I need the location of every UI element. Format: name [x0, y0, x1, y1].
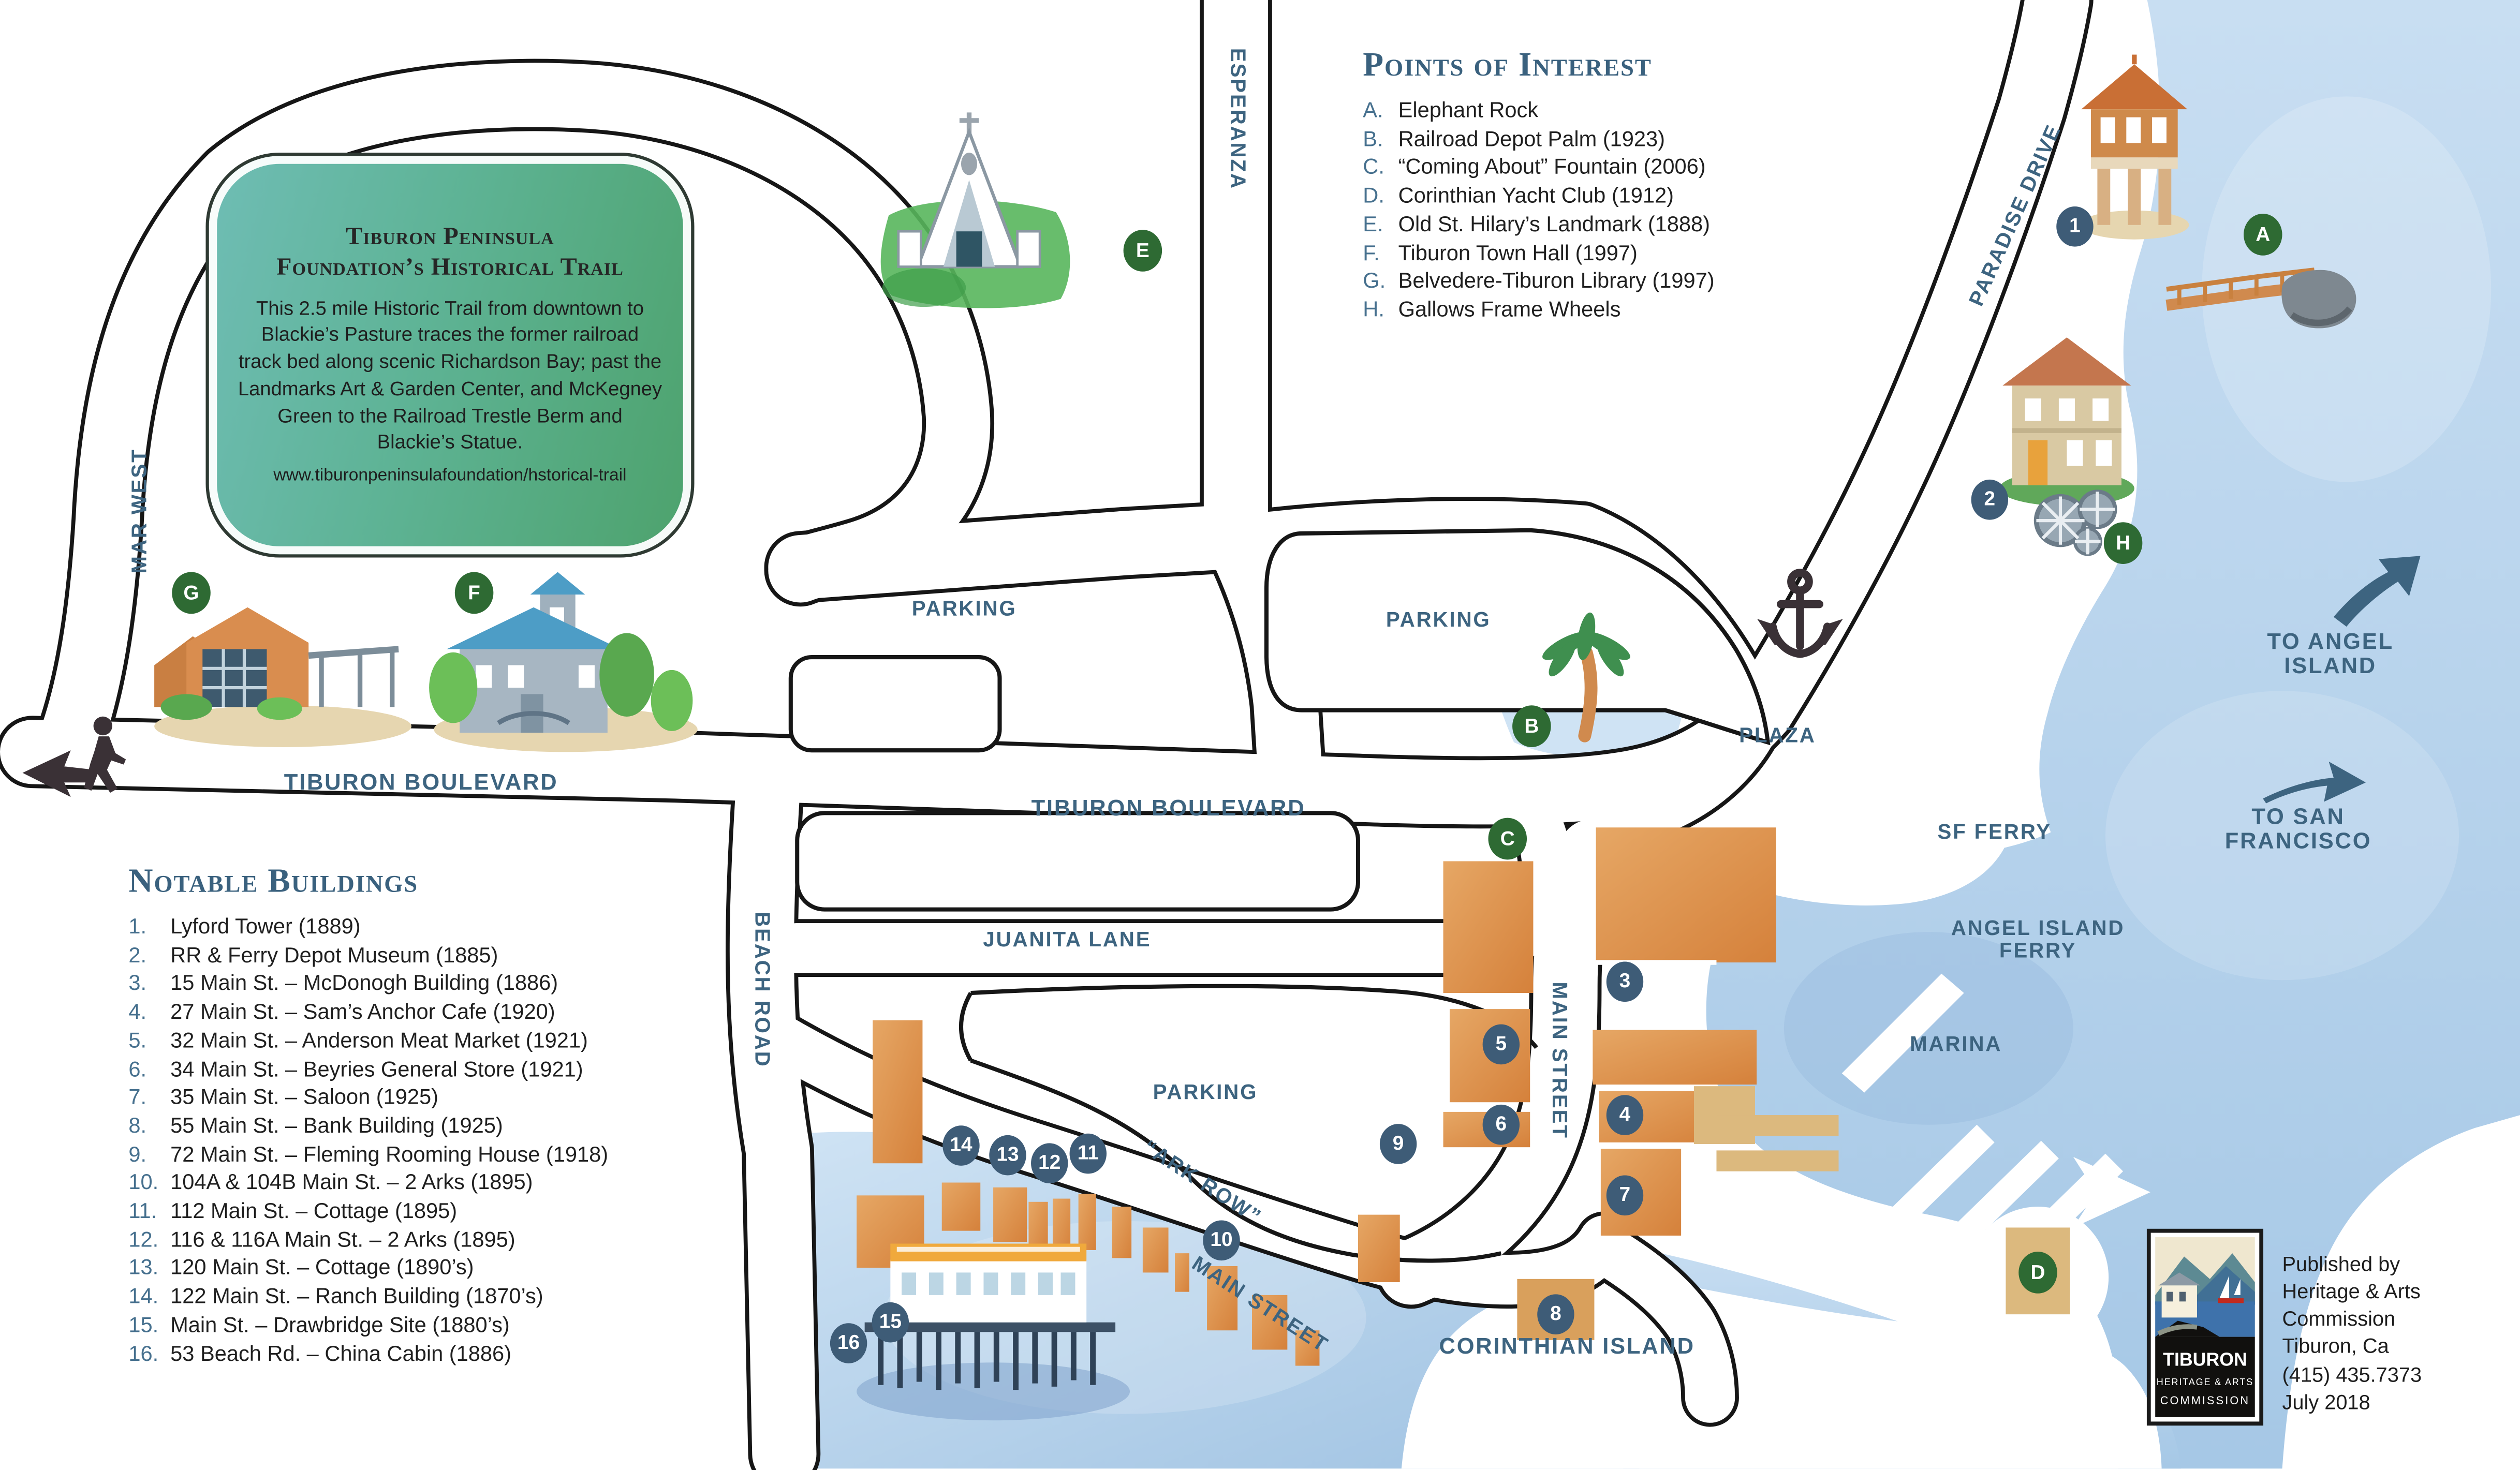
ark-row-building — [942, 1183, 981, 1231]
parking-lot-left — [791, 657, 1000, 750]
trail-description: This 2.5 mile Historic Trail from downto… — [238, 295, 662, 457]
marker-10: 10 — [1203, 1220, 1240, 1260]
poi-heading: Points of Interest — [1363, 48, 1732, 82]
nb-item: 16.53 Beach Rd. – China Cabin (1886) — [128, 1343, 659, 1364]
area-label-parking-left: PARKING — [912, 598, 1017, 620]
points-of-interest-panel: Points of Interest A.Elephant Rock B.Rai… — [1363, 48, 1732, 327]
ark-row-building — [1175, 1253, 1189, 1292]
nb-item: 6.34 Main St. – Beyries General Store (1… — [128, 1058, 659, 1080]
nb-item: 12.116 & 116A Main St. – 2 Arks (1895) — [128, 1229, 659, 1251]
marker-15: 15 — [872, 1302, 909, 1343]
nb-item: 7.35 Main St. – Saloon (1925) — [128, 1087, 659, 1108]
area-label-to-san-francisco: TO SAN FRANCISCO — [2187, 805, 2409, 853]
area-label-angel-island-ferry: ANGEL ISLAND FERRY — [1951, 917, 2125, 962]
trail-title: Tiburon Peninsula Foundation’s Historica… — [276, 223, 624, 284]
parking-lot-strip — [797, 813, 1358, 909]
marker-C: C — [1489, 818, 1527, 860]
marker-1: 1 — [2056, 206, 2093, 247]
ark-row-building — [1143, 1227, 1169, 1272]
poi-item: B.Railroad Depot Palm (1923) — [1363, 128, 1732, 150]
marker-2: 2 — [1971, 480, 2008, 520]
marker-11: 11 — [1070, 1134, 1107, 1174]
nb-heading: Notable Buildings — [128, 865, 659, 898]
poi-item: D.Corinthian Yacht Club (1912) — [1363, 185, 1732, 206]
nb-item: 13.120 Main St. – Cottage (1890’s) — [128, 1257, 659, 1279]
nb-item: 15.Main St. – Drawbridge Site (1880’s) — [128, 1314, 659, 1336]
marker-7: 7 — [1607, 1176, 1643, 1216]
area-label-plaza: PLAZA — [1739, 724, 1816, 747]
building-block — [1358, 1215, 1400, 1282]
marker-13: 13 — [989, 1135, 1026, 1176]
marker-A: A — [2244, 214, 2282, 256]
nb-item: 5.32 Main St. – Anderson Meat Market (19… — [128, 1030, 659, 1051]
marker-F: F — [455, 572, 494, 614]
marker-4: 4 — [1607, 1095, 1643, 1135]
street-label-tiburon-blvd-west: TIBURON BOULEVARD — [284, 770, 558, 795]
svg-text:COMMISSION: COMMISSION — [2160, 1394, 2250, 1407]
area-label-marina: MARINA — [1910, 1033, 2002, 1056]
street-label-beach-road: BEACH ROAD — [750, 912, 773, 1068]
marker-14: 14 — [942, 1125, 979, 1166]
marker-H: H — [2104, 522, 2143, 564]
street-label-tiburon-blvd-center: TIBURON BOULEVARD — [1031, 796, 1306, 821]
poi-item: E.Old St. Hilary’s Landmark (1888) — [1363, 213, 1732, 235]
nb-item: 8.55 Main St. – Bank Building (1925) — [128, 1115, 659, 1137]
marina-finger-pier — [1716, 1115, 1838, 1136]
heritage-commission-logo: TIBURON HERITAGE & ARTS COMMISSION — [2149, 1231, 2261, 1424]
trail-title-badge: Tiburon Peninsula Foundation’s Historica… — [205, 153, 694, 558]
nb-item: 10.104A & 104B Main St. – 2 Arks (1895) — [128, 1172, 659, 1194]
marker-G: G — [172, 572, 211, 614]
poi-item: C.“Coming About” Fountain (2006) — [1363, 156, 1732, 178]
historical-trail-map: TIBURON HERITAGE & ARTS COMMISSION Tibur… — [0, 0, 2520, 1470]
gallows-wheels-illustration — [2036, 492, 2115, 554]
marker-6: 6 — [1483, 1105, 1520, 1145]
area-label-sf-ferry: SF FERRY — [1937, 821, 2052, 844]
marker-D: D — [2018, 1252, 2057, 1294]
depot-museum-illustration — [1999, 337, 2134, 506]
marina-finger-pier — [1716, 1150, 1838, 1171]
poi-item: H.Gallows Frame Wheels — [1363, 299, 1732, 320]
area-label-corinthian-island: CORINTHIAN ISLAND — [1439, 1334, 1695, 1359]
ark-row-building — [993, 1187, 1027, 1242]
nb-item: 11.112 Main St. – Cottage (1895) — [128, 1200, 659, 1222]
library-illustration — [154, 607, 411, 747]
building-block — [1596, 827, 1776, 962]
nb-item: 2.RR & Ferry Depot Museum (1885) — [128, 944, 659, 966]
area-label-parking-right: PARKING — [1386, 609, 1491, 632]
notable-buildings-panel: Notable Buildings 1.Lyford Tower (1889) … — [128, 865, 659, 1371]
marker-5: 5 — [1483, 1024, 1520, 1065]
marker-16: 16 — [830, 1323, 867, 1363]
poi-item: A.Elephant Rock — [1363, 100, 1732, 122]
trail-url: www.tiburonpeninsulafoundation/hstorical… — [273, 465, 626, 487]
street-label-mar-west: MAR WEST — [128, 448, 151, 573]
area-label-to-angel-island: TO ANGEL ISLAND — [2235, 630, 2425, 678]
marker-8: 8 — [1537, 1294, 1574, 1334]
svg-text:TIBURON: TIBURON — [2163, 1349, 2247, 1370]
ark-row-building — [1112, 1207, 1131, 1258]
publisher-info: Published by Heritage & Arts Commission … — [2282, 1250, 2508, 1415]
nb-item: 3.15 Main St. – McDonogh Building (1886) — [128, 973, 659, 994]
poi-item: G.Belvedere-Tiburon Library (1997) — [1363, 270, 1732, 292]
poi-item: F.Tiburon Town Hall (1997) — [1363, 242, 1732, 263]
ark-row-building — [1079, 1194, 1096, 1250]
parking-lot-right — [1266, 530, 1768, 743]
svg-text:HERITAGE & ARTS: HERITAGE & ARTS — [2157, 1377, 2253, 1387]
marker-9: 9 — [1380, 1124, 1417, 1164]
building-block — [873, 1020, 922, 1163]
building-block — [1593, 1030, 1757, 1085]
nb-item: 14.122 Main St. – Ranch Building (1870’s… — [128, 1286, 659, 1308]
street-label-esperanza: ESPERANZA — [1226, 48, 1249, 190]
marker-3: 3 — [1607, 962, 1643, 1002]
nb-item: 9.72 Main St. – Fleming Rooming House (1… — [128, 1144, 659, 1165]
street-label-main-street: MAIN STREET — [1548, 982, 1570, 1139]
building-block — [1443, 861, 1534, 993]
marker-12: 12 — [1031, 1143, 1068, 1183]
marker-B: B — [1512, 705, 1551, 747]
marker-E: E — [1124, 230, 1162, 272]
church-illustration — [881, 112, 1070, 308]
area-label-parking-center: PARKING — [1153, 1081, 1258, 1104]
nb-item: 1.Lyford Tower (1889) — [128, 916, 659, 938]
street-label-juanita-lane: JUANITA LANE — [983, 929, 1151, 952]
nb-item: 4.27 Main St. – Sam’s Anchor Cafe (1920) — [128, 1001, 659, 1023]
